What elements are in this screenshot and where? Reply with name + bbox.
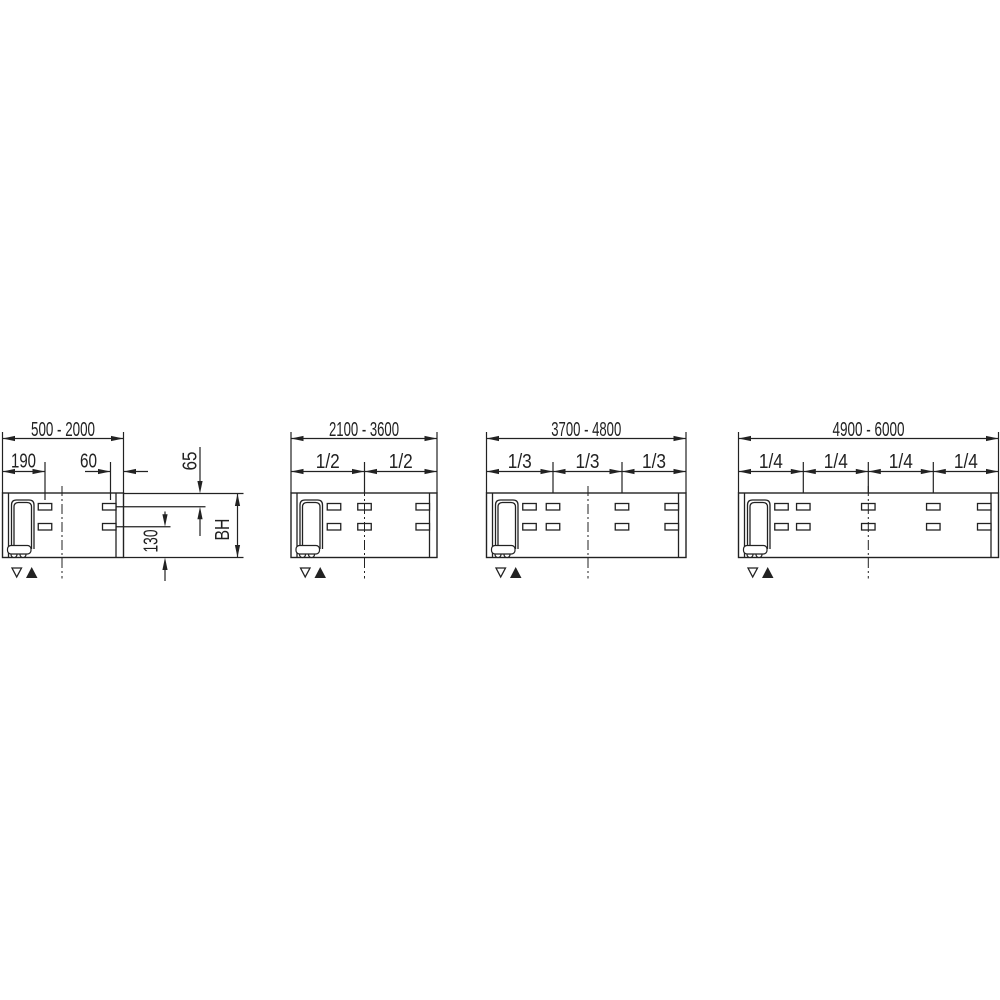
mounting-slot [927,504,941,511]
fraction-label: 1/4 [889,450,913,473]
mounting-slot [327,524,341,531]
mounting-slot [665,504,679,511]
fraction-label: 1/4 [759,450,783,473]
dimension-arrowhead [868,469,881,474]
mounting-slot [615,504,629,511]
end-slat-foot-body [8,546,32,555]
dimension-arrowhead [425,436,438,441]
dimension-arrowhead [98,469,111,474]
fraction-label: 1/2 [389,450,413,473]
dim-label-bh: BH [211,519,234,541]
dimension-arrowhead [541,469,554,474]
drawing-surface: 500 - 20002100 - 36001/21/23700 - 48001/… [0,0,1000,1000]
fraction-label: 1/3 [642,450,666,473]
dimension-arrowhead [124,469,137,474]
dimension-arrowhead [111,436,124,441]
range-label: 4900 - 6000 [833,418,905,441]
dimension-arrowhead [739,469,752,474]
mounting-slot [416,524,430,531]
dim-label-130: 130 [140,530,163,553]
panel-outline [487,493,687,558]
triangle-up-filled-symbol [510,567,522,578]
dimension-arrowhead [365,469,378,474]
dimension-arrowhead [986,469,999,474]
dimension-arrowhead [352,469,365,474]
dimension-arrowhead [235,494,240,507]
dimension-arrowhead [291,469,304,474]
mounting-slot [546,524,560,531]
mounting-slot [416,504,430,511]
mounting-slot [775,504,789,511]
triangle-up-filled-symbol [26,567,38,578]
technical-drawing-slot-layout: 500 - 20002100 - 36001/21/23700 - 48001/… [0,0,1000,1000]
range-label: 3700 - 4800 [551,418,621,441]
mounting-slot [38,504,52,511]
triangle-down-outline-symbol [12,568,22,577]
dimension-arrowhead [487,469,500,474]
dimension-arrowhead [3,436,16,441]
mounting-slot [797,524,811,531]
end-slat-foot-body [744,546,768,555]
fraction-label: 1/2 [316,450,340,473]
dimension-arrowhead [803,469,816,474]
dimension-arrowhead [739,436,752,441]
triangle-up-filled-symbol [315,567,327,578]
mounting-slot [775,524,789,531]
mounting-slot [978,504,992,511]
dimension-arrowhead [235,545,240,558]
triangle-down-outline-symbol [301,568,311,577]
end-slat-foot-body [296,546,320,555]
dimension-arrowhead [553,469,566,474]
mounting-slot [797,504,811,511]
mounting-slot [103,504,117,511]
dimension-arrowhead [674,469,687,474]
triangle-up-filled-symbol [762,567,774,578]
dimension-arrowhead [425,469,438,474]
dim-label-60: 60 [80,450,97,473]
mounting-slot [523,504,537,511]
triangle-down-outline-symbol [748,568,758,577]
dimension-arrowhead [933,469,946,474]
mounting-slot [38,524,52,531]
mounting-slot [546,504,560,511]
mounting-slot [103,524,117,531]
dimension-arrowhead [197,507,202,520]
dimension-arrowhead [610,469,623,474]
fraction-label: 1/4 [954,450,978,473]
triangle-down-outline-symbol [496,568,506,577]
dimension-arrowhead [986,436,999,441]
mounting-slot [615,524,629,531]
fraction-label: 1/3 [576,450,600,473]
dimension-arrowhead [162,514,167,527]
mounting-slot [927,524,941,531]
dimension-arrowhead [487,436,500,441]
end-slat-foot-body [492,546,516,555]
mounting-slot [978,524,992,531]
mounting-slot [665,524,679,531]
dimension-arrowhead [197,481,202,494]
dimension-arrowhead [856,469,869,474]
dim-label-65: 65 [179,452,202,471]
dim-label-190: 190 [11,450,36,473]
mounting-slot [523,524,537,531]
dimension-arrowhead [622,469,635,474]
range-label: 500 - 2000 [31,418,95,441]
dimension-arrowhead [162,558,167,571]
dimension-arrowhead [291,436,304,441]
dimension-arrowhead [921,469,934,474]
dimension-arrowhead [674,436,687,441]
mounting-slot [327,504,341,511]
dimension-arrowhead [791,469,804,474]
range-label: 2100 - 3600 [329,418,399,441]
fraction-label: 1/4 [824,450,848,473]
fraction-label: 1/3 [508,450,532,473]
